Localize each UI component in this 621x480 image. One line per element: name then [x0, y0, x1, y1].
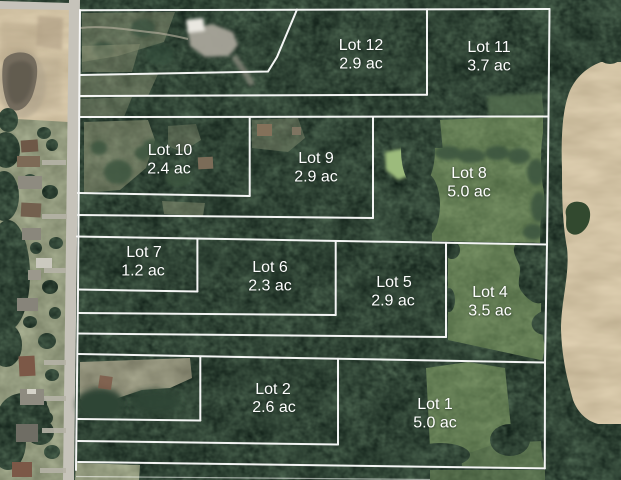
svg-text:Lot 4: Lot 4	[472, 284, 508, 301]
svg-text:Lot 11: Lot 11	[467, 39, 510, 56]
svg-text:Lot 8: Lot 8	[451, 165, 487, 182]
svg-text:3.7 ac: 3.7 ac	[467, 58, 511, 75]
svg-text:2.4 ac: 2.4 ac	[147, 161, 191, 178]
svg-text:Lot 9: Lot 9	[298, 150, 334, 167]
svg-text:5.0 ac: 5.0 ac	[447, 184, 491, 201]
svg-text:2.6 ac: 2.6 ac	[252, 399, 296, 416]
svg-text:Lot 10: Lot 10	[148, 142, 193, 159]
svg-text:2.9 ac: 2.9 ac	[339, 56, 383, 73]
svg-text:Lot 1: Lot 1	[417, 396, 453, 413]
svg-text:Lot 7: Lot 7	[126, 244, 162, 261]
svg-text:Lot 6: Lot 6	[252, 259, 288, 276]
svg-text:2.3 ac: 2.3 ac	[248, 278, 292, 295]
svg-text:Lot 2: Lot 2	[255, 381, 291, 398]
svg-text:2.9 ac: 2.9 ac	[371, 293, 415, 310]
svg-text:1.2 ac: 1.2 ac	[121, 263, 165, 280]
svg-text:Lot 5: Lot 5	[376, 274, 412, 291]
svg-text:2.9 ac: 2.9 ac	[294, 169, 338, 186]
svg-text:5.0 ac: 5.0 ac	[413, 415, 457, 432]
svg-text:3.5 ac: 3.5 ac	[468, 303, 512, 320]
svg-text:Lot 12: Lot 12	[339, 37, 384, 54]
